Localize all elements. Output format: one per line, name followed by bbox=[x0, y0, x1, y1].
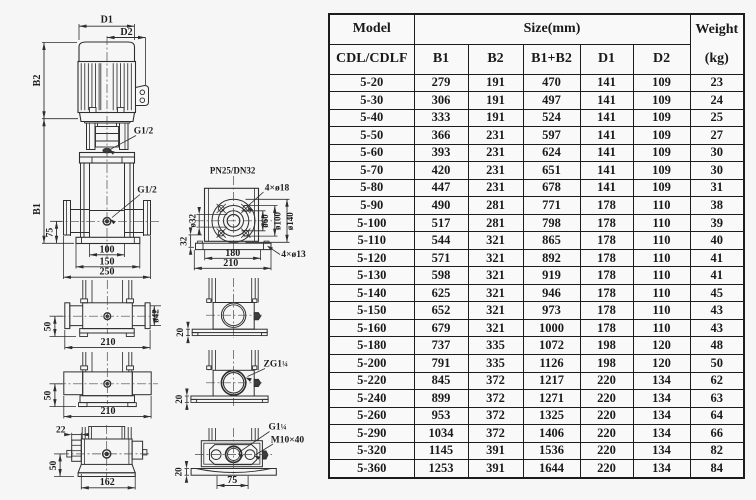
svg-text:PN25/DN32: PN25/DN32 bbox=[210, 166, 256, 176]
svg-text:ø42: ø42 bbox=[151, 309, 161, 323]
svg-text:20: 20 bbox=[174, 467, 184, 477]
svg-text:32: 32 bbox=[178, 236, 188, 246]
svg-text:G1/2: G1/2 bbox=[137, 186, 157, 196]
svg-text:ø60: ø60 bbox=[260, 214, 270, 228]
svg-text:M10×40: M10×40 bbox=[271, 435, 305, 445]
svg-text:100: 100 bbox=[100, 244, 115, 255]
svg-text:B2: B2 bbox=[32, 75, 43, 87]
svg-text:162: 162 bbox=[100, 477, 115, 488]
svg-text:50: 50 bbox=[44, 322, 54, 332]
svg-text:50: 50 bbox=[44, 391, 54, 401]
svg-text:4×ø13: 4×ø13 bbox=[281, 250, 306, 260]
svg-text:ZG1¼: ZG1¼ bbox=[264, 360, 288, 370]
svg-text:G1/2: G1/2 bbox=[134, 127, 154, 137]
svg-text:20: 20 bbox=[174, 394, 184, 404]
svg-text:250: 250 bbox=[100, 267, 115, 278]
svg-text:ø32: ø32 bbox=[187, 214, 197, 228]
svg-text:210: 210 bbox=[101, 337, 116, 348]
svg-text:4×ø18: 4×ø18 bbox=[265, 184, 290, 194]
svg-text:210: 210 bbox=[223, 258, 238, 269]
svg-text:50: 50 bbox=[49, 461, 59, 471]
svg-text:D1: D1 bbox=[101, 15, 113, 26]
svg-text:210: 210 bbox=[101, 406, 116, 417]
svg-text:G1¼: G1¼ bbox=[269, 423, 287, 433]
svg-text:75: 75 bbox=[227, 475, 237, 486]
svg-text:ø100: ø100 bbox=[273, 212, 283, 231]
svg-text:20: 20 bbox=[175, 327, 185, 337]
svg-text:75: 75 bbox=[46, 228, 56, 238]
svg-text:ø140: ø140 bbox=[285, 212, 295, 231]
svg-text:B1: B1 bbox=[32, 203, 43, 215]
svg-text:150: 150 bbox=[100, 256, 115, 267]
svg-text:D2: D2 bbox=[120, 27, 132, 38]
